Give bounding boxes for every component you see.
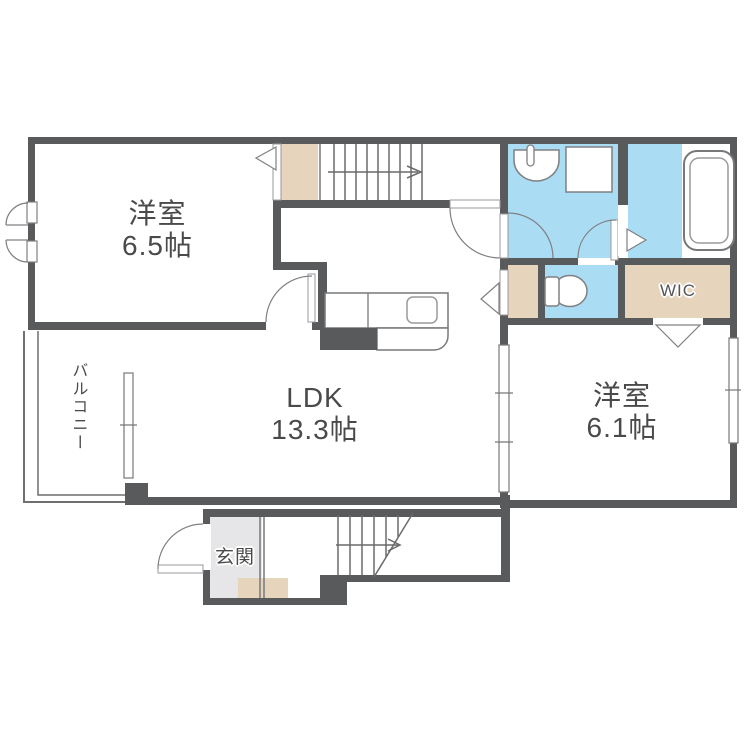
closet-upper-floor (281, 144, 318, 200)
hall-closet-bifold-door (481, 270, 508, 315)
hall-closet-floor (508, 265, 538, 318)
kitchen-counter (320, 293, 448, 350)
washbasin (514, 145, 559, 181)
ldk-door (266, 274, 315, 330)
bedroom-b-size: 6.1帖 (542, 412, 702, 444)
room-label-wic: WIC (637, 281, 719, 301)
stairs-up-arrow (328, 166, 421, 178)
room-label-ldk: LDK 13.3帖 (235, 382, 395, 446)
room-label-balcony: バルコニー (68, 352, 86, 462)
ldk-bedroom-sliding-door (499, 345, 509, 492)
bathtub (684, 151, 734, 250)
bedroom-b-name: 洋室 (542, 380, 702, 412)
floor-plan-drawing (0, 0, 750, 750)
bedroom-a-size: 6.5帖 (60, 230, 255, 262)
kitchen-sink (407, 297, 437, 323)
hall-door (450, 200, 500, 258)
divider-lines (260, 144, 320, 598)
room-label-bedroom-b: 洋室 6.1帖 (542, 380, 702, 444)
ldk-name: LDK (235, 382, 395, 414)
floor-fills (210, 144, 730, 598)
washing-machine-pan (566, 147, 612, 192)
room-label-bedroom-a: 洋室 6.5帖 (60, 198, 255, 262)
entrance-step-mat (238, 578, 288, 598)
staircase-lower (336, 513, 413, 577)
staircase-upper (328, 144, 422, 200)
ldk-size: 13.3帖 (235, 414, 395, 446)
front-door (158, 524, 211, 573)
wic-bifold-door (653, 318, 703, 347)
toilet (545, 276, 587, 307)
stairs-down-arrow (336, 539, 400, 551)
closet-upper-bifold-door (256, 144, 281, 200)
room-label-entrance: 玄関 (206, 547, 264, 569)
bedroom-a-name: 洋室 (60, 198, 255, 230)
kitchen-base-wall (320, 328, 377, 350)
floor-plan: 洋室 6.5帖 LDK 13.3帖 洋室 6.1帖 バルコニー 玄関 WIC (0, 0, 750, 750)
